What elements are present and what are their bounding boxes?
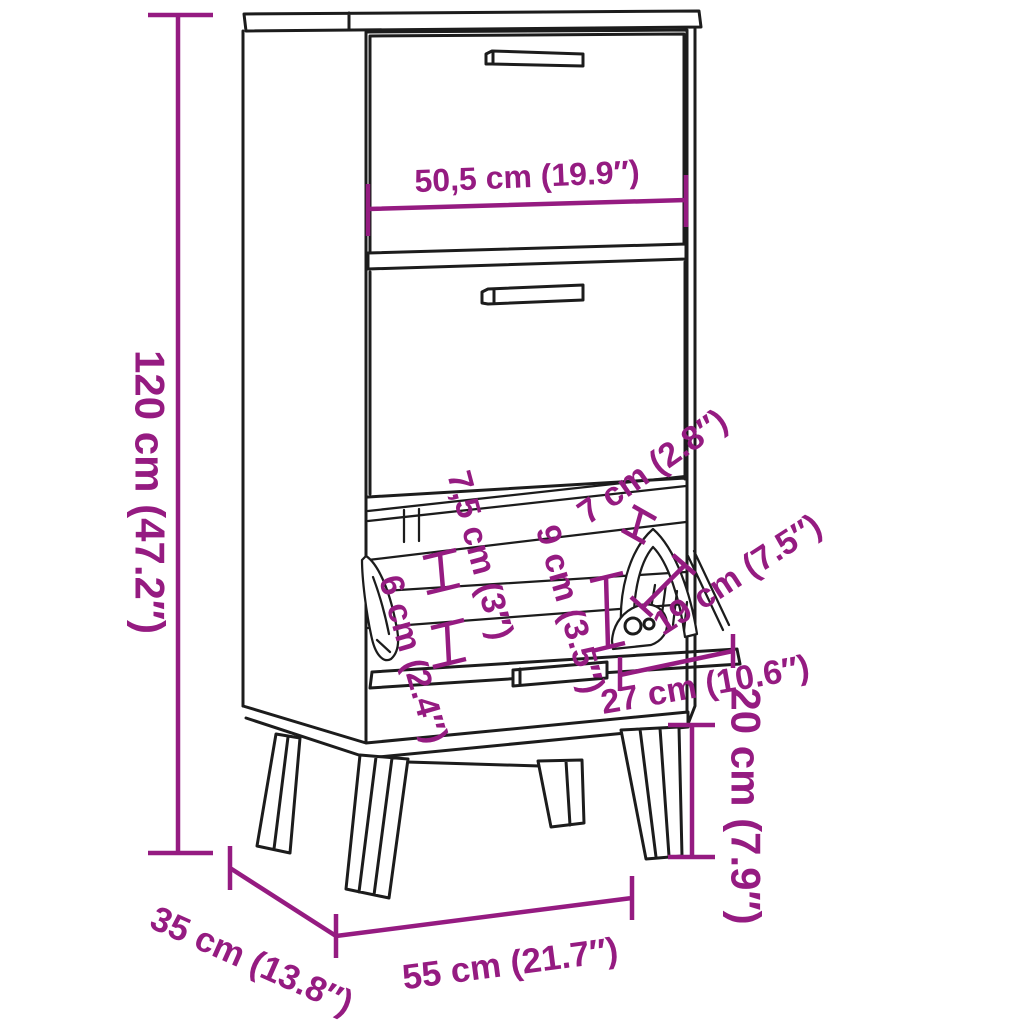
flap-divider-gap	[368, 244, 686, 269]
dim-flap-front-width-label: 50,5 cm (19.9″)	[414, 153, 641, 199]
dim-depth-label: 35 cm (13.8″)	[145, 899, 359, 1023]
dim-top-gap: 7 cm (2.8″)	[571, 402, 735, 543]
dimension-annotations: 120 cm (47.2″) 50,5 cm (19.9″) 7 cm (2.8…	[126, 15, 828, 1023]
dim-top-gap-label: 7 cm (2.8″)	[571, 402, 735, 532]
dimension-diagram-canvas: 120 cm (47.2″) 50,5 cm (19.9″) 7 cm (2.8…	[0, 0, 1024, 1024]
lower-flap-handle	[482, 285, 583, 304]
upper-flap-door	[370, 34, 684, 252]
dim-flap-pocket-depth: 19 cm (7.5″)	[631, 507, 828, 643]
product-dimension-diagram: 120 cm (47.2″) 50,5 cm (19.9″) 7 cm (2.8…	[0, 0, 1024, 1024]
dim-upper-clearance-line	[423, 550, 460, 593]
dim-flap-front-width: 50,5 cm (19.9″)	[368, 153, 686, 236]
dim-leg-height-label: 20 cm (7.9″)	[722, 687, 769, 924]
dim-upper-clearance-label: 7,5 cm (3″)	[439, 467, 521, 644]
leg-back-right	[538, 760, 584, 827]
dim-lower-clearance-line	[431, 620, 466, 667]
leg-front-right	[621, 727, 682, 859]
dim-depth: 35 cm (13.8″)	[145, 846, 359, 1023]
dim-height-label: 120 cm (47.2″)	[126, 350, 173, 634]
leg-back-left	[257, 734, 300, 853]
upper-flap-handle	[486, 51, 583, 66]
dim-height: 120 cm (47.2″)	[126, 15, 213, 853]
cabinet-top-panel	[244, 11, 701, 31]
dim-leg-height: 20 cm (7.9″)	[668, 687, 769, 924]
leg-front-left	[346, 755, 408, 898]
dim-width-label: 55 cm (21.7″)	[400, 930, 620, 997]
